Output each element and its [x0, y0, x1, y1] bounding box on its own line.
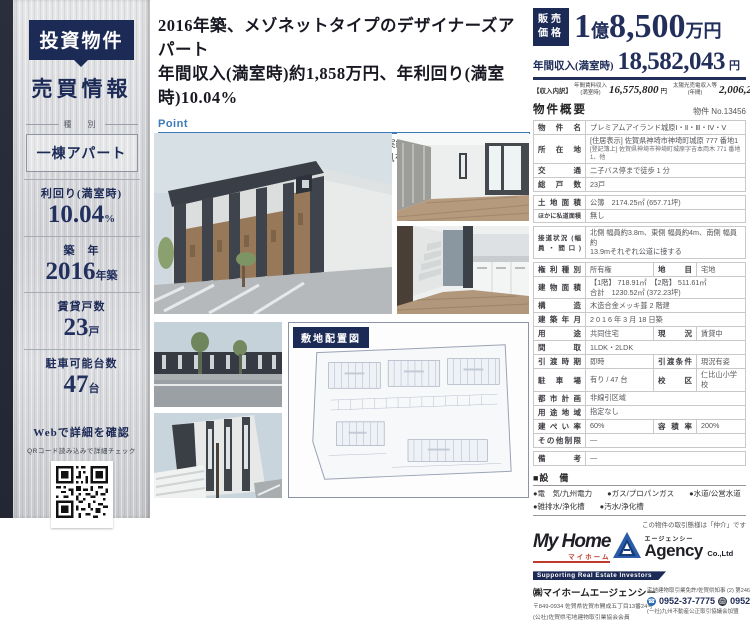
- company-address: 〒849-0934 佐賀県佐賀市開成五丁目13番24号: [533, 601, 641, 610]
- divider: [26, 124, 59, 125]
- sidebar-edge-stripe: [0, 0, 13, 518]
- divider: [105, 124, 138, 125]
- deal-type-note: この物件の取引態様は「仲介」です: [533, 519, 746, 529]
- table-row: 所在地[住居表示] 佐賀県神埼市神埼町城原 777 番地1[登記簿上] 佐賀県神…: [533, 135, 746, 164]
- fax-number: 0952-37-9996: [730, 596, 750, 606]
- point-heading: Point: [158, 118, 529, 130]
- table-row: 構 造木造合金メッキ葺 2 階建: [533, 299, 746, 313]
- stat-units: 賃貸戸数 23戸: [24, 292, 140, 342]
- annual-income-unit: 円: [729, 57, 740, 73]
- table-row: 建ぺい率60%容積率200%: [533, 420, 746, 434]
- equipment-list: ●電 気/九州電力 ●ガス/プロパンガス ●水道/公営水道 ●雑排水/浄化槽 ●…: [533, 486, 746, 517]
- stat-yield: 利回り(満室時) 10.04%: [24, 179, 140, 229]
- overview-header: 物件概要 物件 No.13456: [533, 101, 746, 117]
- interior-photo-stack: [397, 133, 529, 314]
- income-breakdown: 【収入内訳】 年間賃料収入(満室時) 16,575,800 円 太陽光売電収入等…: [533, 83, 746, 96]
- table-row: 駐車場有り / 47 台校 区仁比山小学校: [533, 369, 746, 391]
- equipment-heading: ■設 備: [533, 471, 746, 486]
- type-value: 一棟アパート: [26, 134, 138, 172]
- photo-street-view: [154, 322, 282, 407]
- fax-icon: 🖨: [718, 597, 727, 606]
- page-title-line1: 2016年築、メゾネットタイプのデザイナーズアパート: [158, 14, 529, 62]
- investment-tag: 投資物件: [29, 20, 133, 60]
- logo-triangle-icon: [612, 531, 642, 564]
- table-row: 物件名プレミアムアイランド城原Ⅰ・Ⅱ・Ⅲ・Ⅳ・Ⅴ: [533, 121, 746, 135]
- property-table: 物件名プレミアムアイランド城原Ⅰ・Ⅱ・Ⅲ・Ⅳ・Ⅴ 所在地[住居表示] 佐賀県神埼…: [533, 120, 746, 466]
- qr-code-icon: [56, 466, 108, 518]
- table-row: 権利種別所有権地 目宅地: [533, 262, 746, 277]
- siteplan-panel: 敷地配置図: [288, 322, 529, 498]
- phone-icon: ☎: [647, 597, 656, 606]
- sale-info-title: 売買情報: [32, 73, 132, 103]
- table-row: ほかに私道面積無し: [533, 210, 746, 223]
- photo-grid: [154, 133, 529, 314]
- table-row: 引渡時期即時引渡条件現況有姿: [533, 355, 746, 369]
- phone-number: 0952-37-7775: [659, 596, 715, 606]
- annual-income-value: 18,582,043: [618, 48, 726, 76]
- logo-co-text: Co.,Ltd: [707, 549, 733, 558]
- sale-price-row: 販売価格 1億8,500万円: [533, 8, 746, 46]
- photo-building-corner: [154, 413, 282, 498]
- table-row: 用途地域指定なし: [533, 406, 746, 420]
- table-row: その他制限―: [533, 434, 746, 448]
- annual-income-row: 年間収入(満室時) 18,582,043 円: [533, 48, 746, 80]
- main-content: 2016年築、メゾネットタイプのデザイナーズアパート 年間収入(満室時)約1,8…: [150, 0, 533, 518]
- street-photo-stack: [154, 322, 282, 498]
- annual-income-label: 年間収入(満室時): [533, 58, 614, 73]
- table-row: 建物面積【1階】 718.91㎡ 【2階】 511.61㎡合計 1230.52㎡…: [533, 277, 746, 299]
- stat-parking: 駐車可能台数 47台: [24, 349, 140, 399]
- logo-myhome-text: My Home: [533, 532, 610, 551]
- table-row: 備 考―: [533, 451, 746, 466]
- property-number: 物件 No.13456: [693, 106, 746, 117]
- table-row: 交通二子バス停まで徒歩 1 分: [533, 164, 746, 178]
- photo-interior-kitchen: [397, 226, 529, 314]
- table-row: 土地面積公簿 2174.25㎡ (657.71坪): [533, 195, 746, 210]
- company-name: ㈱マイホームエージェンシー: [533, 585, 641, 599]
- sidebar: 投資物件 売買情報 種 別 一棟アパート 利回り(満室時) 10.04% 築 年…: [0, 0, 150, 518]
- photo-interior-living: [397, 133, 529, 221]
- table-row: 間 取1LDK・2LDK: [533, 341, 746, 355]
- sale-price-value: 1億8,500万円: [574, 8, 722, 46]
- license-text: 宅地建物取引業免許/佐賀県知事 (2) 第2467号: [647, 586, 750, 594]
- company-info: ㈱マイホームエージェンシー 〒849-0934 佐賀県佐賀市開成五丁目13番24…: [533, 585, 746, 621]
- page-title-line2: 年間収入(満室時)約1,858万円、年利回り(満室時)10.04%: [158, 62, 529, 110]
- contact-row: ☎ 0952-37-7775 🖨 0952-37-9996: [647, 596, 750, 606]
- bottom-photo-row: 敷地配置図: [154, 322, 529, 498]
- table-row: 総戸数23戸: [533, 178, 746, 192]
- type-label: 種 別: [64, 119, 100, 130]
- property-detail-column: 販売価格 1億8,500万円 年間収入(満室時) 18,582,043 円 【収…: [533, 0, 746, 518]
- membership-2: (一社)九州不動産公正取引協議会加盟: [647, 607, 750, 615]
- siteplan-drawing: [289, 323, 528, 497]
- logo-myhome-kana: マイホーム: [533, 551, 610, 563]
- membership-1: (公社)佐賀県宅地建物取引業協会会員: [533, 612, 641, 621]
- siteplan-label: 敷地配置図: [293, 327, 369, 348]
- property-type-section: 種 別 一棟アパート: [26, 119, 138, 172]
- web-detail-label: Webで詳細を確認: [33, 424, 129, 440]
- table-row: 都市計画非線引区域: [533, 392, 746, 406]
- table-row: 接道状況 (幅員・間口)北側 幅員約3.8m、東側 幅員約4m、南側 幅員約13…: [533, 226, 746, 259]
- photo-building-exterior: [154, 133, 392, 314]
- qr-caption: QRコード読み込みで詳細チェック: [27, 445, 136, 455]
- stat-built-year: 築 年 2016年築: [24, 236, 140, 286]
- company-logo: My Home マイホーム エージェンシー Agency Co.,Ltd: [533, 531, 746, 564]
- sale-price-tag: 販売価格: [533, 8, 569, 46]
- logo-agency-text: Agency: [644, 541, 702, 560]
- logo-tagline-banner: Supporting Real Estate Investors: [533, 571, 666, 580]
- overview-title: 物件概要: [533, 101, 587, 117]
- table-row: 用 途共同住宅現 況賃貸中: [533, 327, 746, 341]
- table-row: 建築年月2 0 1 6 年 3 月 18 日築: [533, 313, 746, 327]
- sidebar-panel: 投資物件 売買情報 種 別 一棟アパート 利回り(満室時) 10.04% 築 年…: [13, 0, 150, 518]
